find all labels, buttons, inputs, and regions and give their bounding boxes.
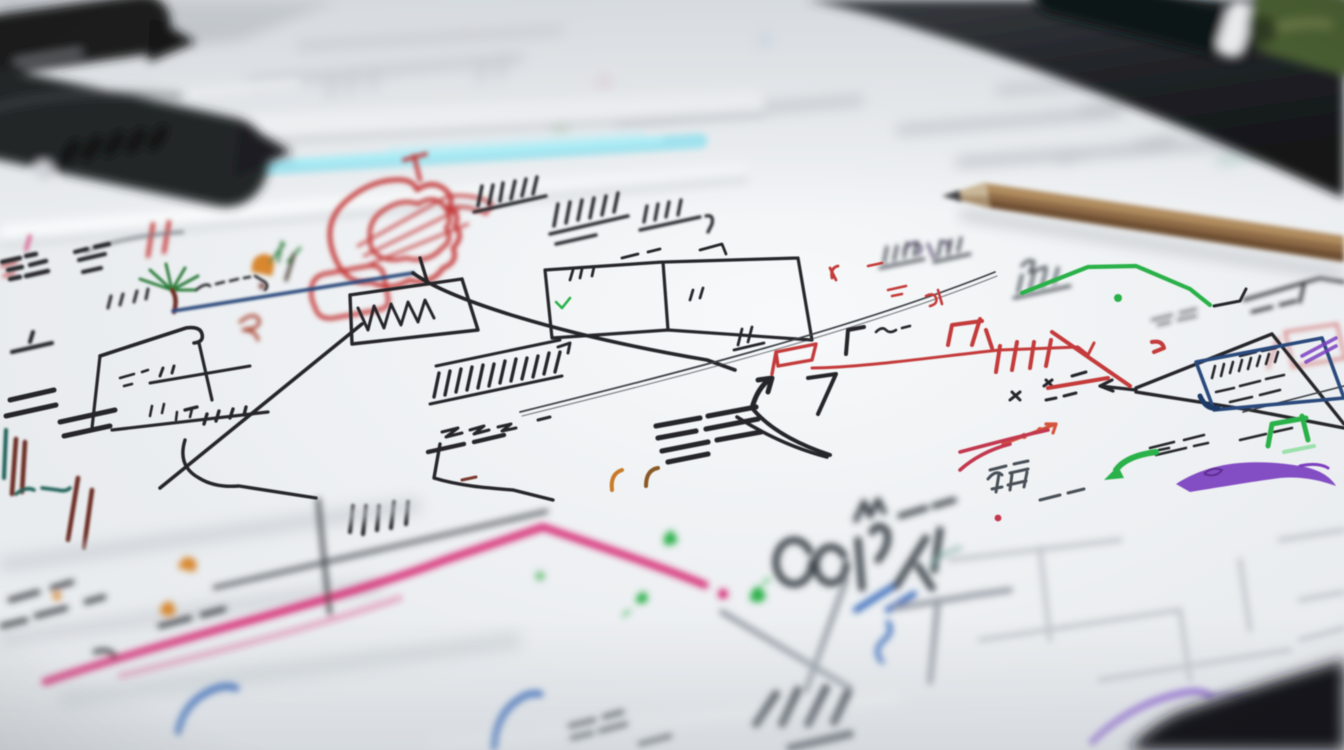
scene-canvas: [0, 0, 1344, 750]
vignette-overlay: [0, 0, 1344, 750]
photo-of-hand-drawn-flowchart: [0, 0, 1344, 750]
